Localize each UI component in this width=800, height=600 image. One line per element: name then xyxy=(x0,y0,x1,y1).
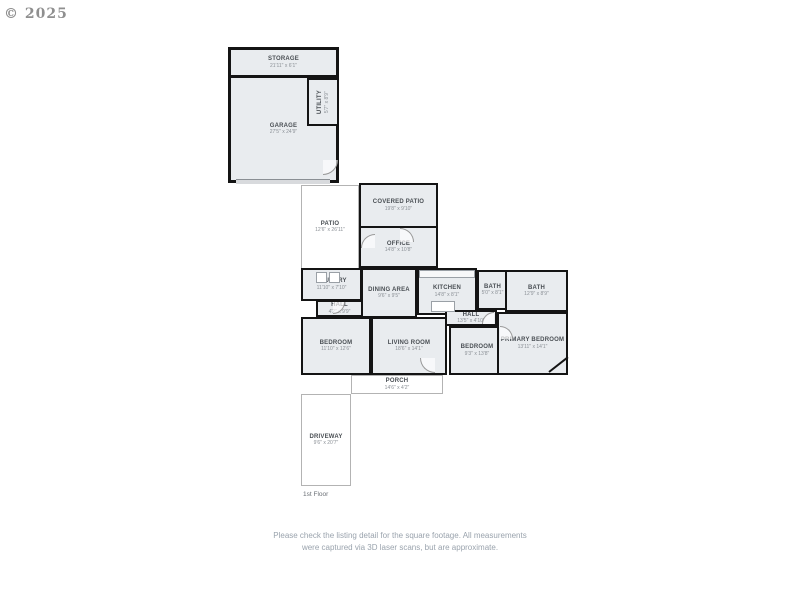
room-dims: 19'8" x 9'10" xyxy=(385,206,412,212)
room-label: UTILITY xyxy=(317,90,324,114)
room-label: BEDROOM xyxy=(461,344,494,351)
disclaimer-line-1: Please check the listing detail for the … xyxy=(0,530,800,542)
room-living-room: LIVING ROOM 18'6" x 14'1" xyxy=(371,317,447,375)
kitchen-counter xyxy=(419,270,475,278)
room-porch: PORCH 14'6" x 4'2" xyxy=(351,375,443,394)
room-dims: 21'11" x 6'1" xyxy=(270,63,297,69)
room-bath: BATH 5'0" x 8'1" xyxy=(477,270,508,310)
room-label: KITCHEN xyxy=(433,285,461,292)
room-dims: 5'7" x 8'9" xyxy=(323,91,329,113)
floorplan-page: © 2025 STORAGE 21'11" x 6'1" GARAGE 27'5… xyxy=(0,0,800,600)
disclaimer-text: Please check the listing detail for the … xyxy=(0,530,800,554)
room-label: BEDROOM xyxy=(320,340,353,347)
room-label: HALL xyxy=(463,312,480,319)
room-dims: 9'6" x 9'5" xyxy=(378,293,400,299)
room-dims: 5'0" x 8'1" xyxy=(482,290,504,296)
room-dims: 9'6" x 20'7" xyxy=(314,440,339,446)
room-label: DRIVEWAY xyxy=(309,434,342,441)
room-dining-area: DINING AREA 9'6" x 9'5" xyxy=(361,268,417,318)
room-utility: UTILITY 5'7" x 8'9" xyxy=(307,78,339,126)
room-dims: 14'6" x 4'2" xyxy=(385,385,410,391)
floor-plan: STORAGE 21'11" x 6'1" GARAGE 27'5" x 24'… xyxy=(0,0,800,600)
room-label: PATIO xyxy=(321,221,339,228)
room-dims: 11'10" x 7'10" xyxy=(317,285,347,291)
room-label: BATH xyxy=(528,285,545,292)
room-label: GARAGE xyxy=(270,123,298,130)
room-label: COVERED PATIO xyxy=(373,199,424,206)
room-dims: 13'5" x 4'10" xyxy=(457,318,484,324)
room-dims: 27'5" x 24'9" xyxy=(270,129,297,135)
room-label: STORAGE xyxy=(268,56,299,63)
room-dims: 13'11" x 14'1" xyxy=(518,344,548,350)
room-dims: 18'6" x 14'1" xyxy=(395,346,422,352)
kitchen-island xyxy=(431,301,455,312)
room-dims: 12'9" x 8'9" xyxy=(524,291,549,297)
room-dims: 9'3" x 13'8" xyxy=(465,351,490,357)
room-label: BATH xyxy=(484,284,501,291)
room-dims: 14'8" x 10'8" xyxy=(385,247,412,253)
room-storage: STORAGE 21'11" x 6'1" xyxy=(228,47,339,78)
room-dims: 11'10" x 12'6" xyxy=(321,346,351,352)
floor-label: 1st Floor xyxy=(303,491,328,498)
room-label: LIVING ROOM xyxy=(388,340,431,347)
garage-door xyxy=(236,179,330,184)
room-label: PORCH xyxy=(386,378,409,385)
room-driveway: DRIVEWAY 9'6" x 20'7" xyxy=(301,394,351,486)
room-covered-patio: COVERED PATIO 19'8" x 9'10" xyxy=(359,183,438,228)
room-dims: 12'6" x 26'11" xyxy=(315,227,345,233)
room-bedroom: BEDROOM 11'10" x 12'6" xyxy=(301,317,371,375)
room-label-group: UTILITY 5'7" x 8'9" xyxy=(317,90,330,114)
room-patio: PATIO 12'6" x 26'11" xyxy=(301,185,359,269)
disclaimer-line-2: were captured via 3D laser scans, but ar… xyxy=(0,542,800,554)
room-dims: 14'8" x 8'1" xyxy=(435,292,460,298)
room-bath-2: BATH 12'9" x 8'9" xyxy=(505,270,568,312)
washer-icon xyxy=(316,272,327,283)
dryer-icon xyxy=(329,272,340,283)
room-label: DINING AREA xyxy=(368,287,410,294)
